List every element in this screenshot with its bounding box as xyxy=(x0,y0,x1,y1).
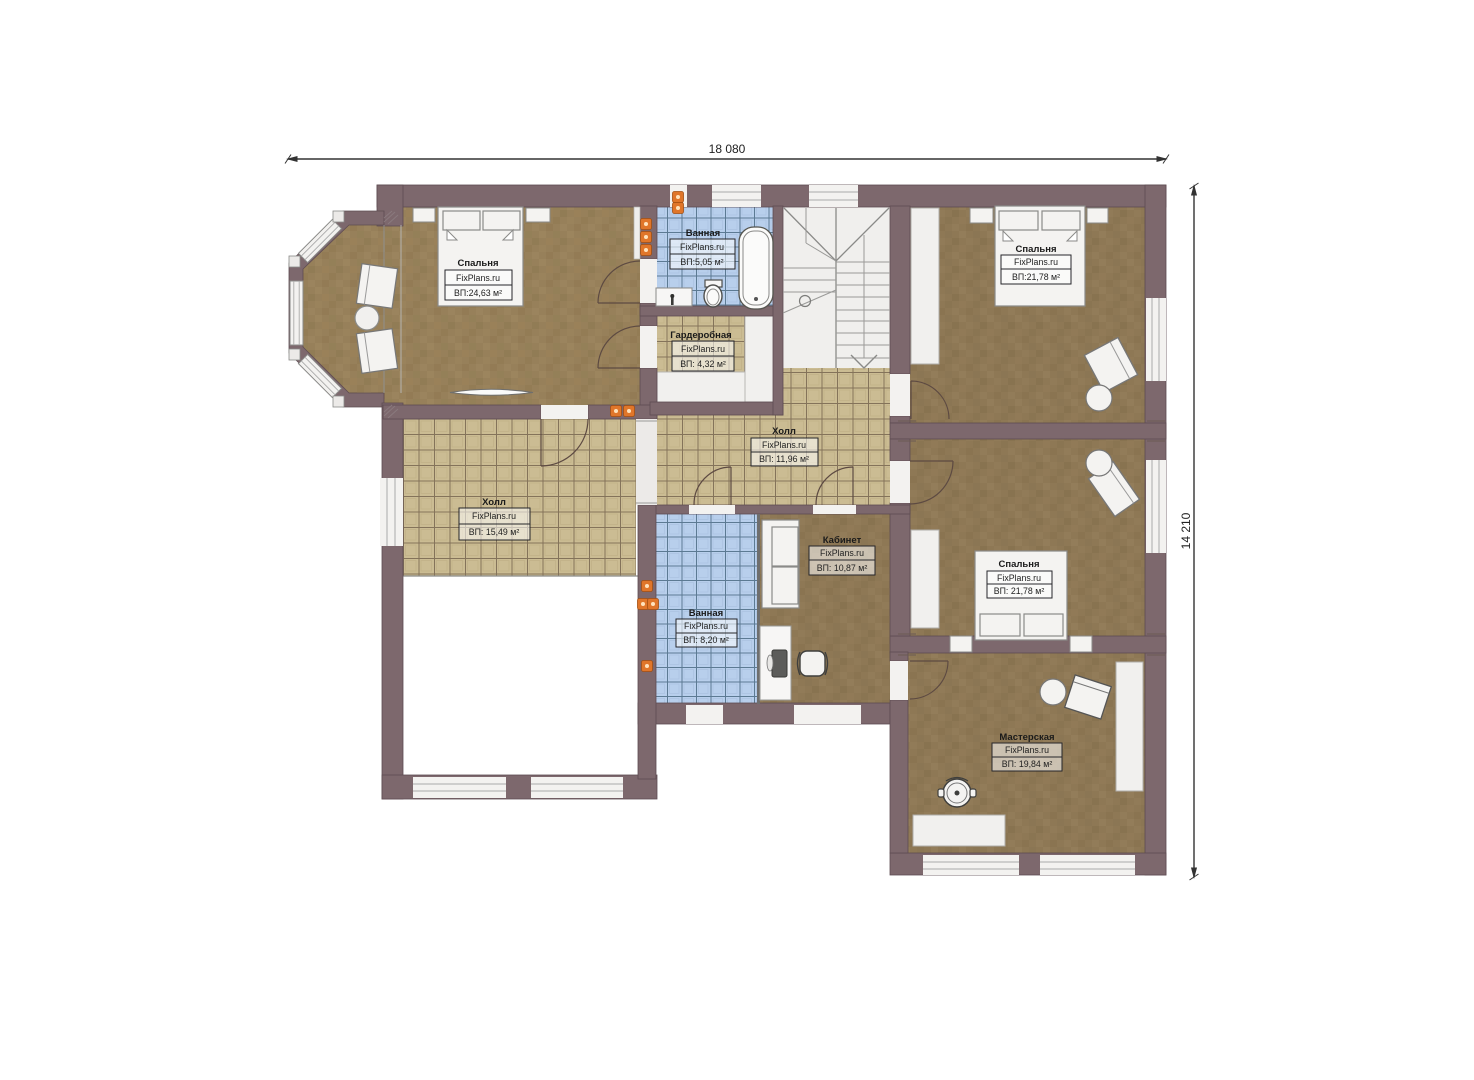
svg-text:Холл: Холл xyxy=(482,497,506,508)
svg-text:Гардеробная: Гардеробная xyxy=(670,330,731,341)
svg-text:ВП: 21,78 м²: ВП: 21,78 м² xyxy=(994,586,1045,596)
svg-text:Спальня: Спальня xyxy=(457,258,498,269)
svg-text:ВП:21,78 м²: ВП:21,78 м² xyxy=(1012,272,1060,282)
svg-text:Спальня: Спальня xyxy=(1015,244,1056,255)
svg-text:FixPlans.ru: FixPlans.ru xyxy=(684,621,728,631)
svg-text:ВП: 10,87 м²: ВП: 10,87 м² xyxy=(817,563,868,573)
svg-text:Ванная: Ванная xyxy=(689,608,723,619)
svg-text:ВП: 19,84 м²: ВП: 19,84 м² xyxy=(1002,759,1053,769)
svg-text:Ванная: Ванная xyxy=(686,228,720,239)
svg-text:FixPlans.ru: FixPlans.ru xyxy=(997,573,1041,583)
svg-text:ВП:5,05 м²: ВП:5,05 м² xyxy=(680,257,723,267)
svg-text:Мастерская: Мастерская xyxy=(999,732,1054,743)
svg-text:ВП: 8,20 м²: ВП: 8,20 м² xyxy=(683,635,729,645)
svg-text:FixPlans.ru: FixPlans.ru xyxy=(1005,745,1049,755)
svg-text:Холл: Холл xyxy=(772,426,796,437)
svg-text:ВП: 15,49 м²: ВП: 15,49 м² xyxy=(469,527,520,537)
svg-text:FixPlans.ru: FixPlans.ru xyxy=(820,548,864,558)
svg-text:FixPlans.ru: FixPlans.ru xyxy=(1014,257,1058,267)
svg-text:ВП: 4,32 м²: ВП: 4,32 м² xyxy=(680,359,726,369)
svg-text:FixPlans.ru: FixPlans.ru xyxy=(472,511,516,521)
svg-text:FixPlans.ru: FixPlans.ru xyxy=(681,344,725,354)
svg-text:FixPlans.ru: FixPlans.ru xyxy=(680,242,724,252)
svg-text:FixPlans.ru: FixPlans.ru xyxy=(762,440,806,450)
svg-text:18 080: 18 080 xyxy=(709,142,746,156)
svg-text:FixPlans.ru: FixPlans.ru xyxy=(456,273,500,283)
svg-text:14 210: 14 210 xyxy=(1179,512,1193,549)
svg-text:ВП: 11,96 м²: ВП: 11,96 м² xyxy=(759,454,809,464)
svg-text:ВП:24,63 м²: ВП:24,63 м² xyxy=(454,288,502,298)
svg-text:Спальня: Спальня xyxy=(998,559,1039,570)
svg-text:Кабинет: Кабинет xyxy=(823,535,862,546)
